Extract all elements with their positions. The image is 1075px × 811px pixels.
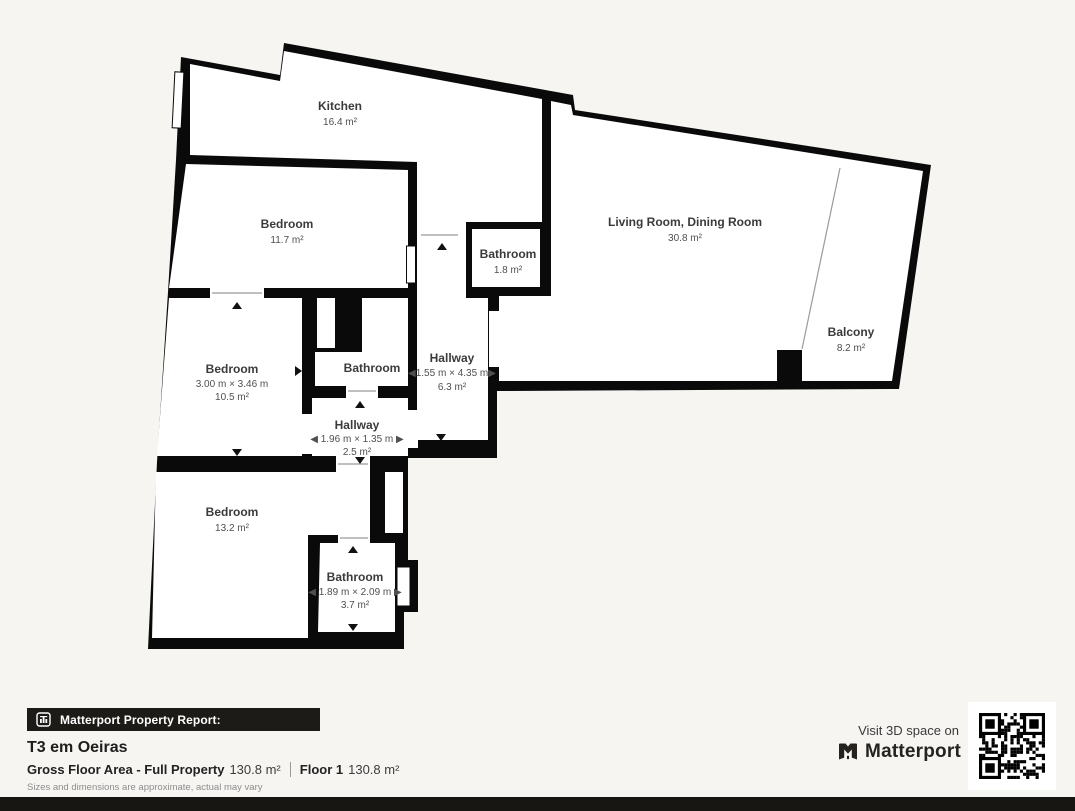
label-hallway-main-dims: ◀1.55 m × 4.35 m▶: [408, 368, 496, 379]
property-title: T3 em Oeiras: [27, 739, 128, 757]
label-bedroom-top-name: Bedroom: [261, 217, 314, 231]
closet: [385, 472, 403, 533]
label-kitchen-name: Kitchen: [318, 99, 362, 113]
label-bathroom-bottom-area: 3.7 m²: [341, 600, 370, 611]
floor-plan-rooms: [152, 51, 923, 638]
matterport-logo-icon: [837, 741, 859, 763]
label-bedroom-mid-area: 10.5 m²: [215, 392, 250, 403]
label-bedroom-top-area: 11.7 m²: [270, 235, 304, 246]
floor-area-stats: Gross Floor Area - Full Property 130.8 m…: [27, 762, 399, 777]
label-bathroom-top-name: Bathroom: [480, 247, 537, 261]
matterport-floor-plan-report: { "colors": { "background": "#f6f5f2", "…: [0, 0, 1075, 811]
bottom-bar: [0, 797, 1075, 811]
report-header-bar: Matterport Property Report:: [27, 708, 320, 731]
label-living-area: 30.8 m²: [668, 233, 703, 244]
label-bathroom-top-area: 1.8 m²: [494, 265, 523, 276]
room-living-balcony: [499, 101, 923, 381]
visit-3d-text: Visit 3D space on: [837, 723, 959, 738]
label-balcony-name: Balcony: [828, 325, 875, 339]
label-hallway-main-area: 6.3 m²: [438, 382, 467, 393]
report-building-icon: [36, 712, 51, 727]
floor-plan: Kitchen 16.4 m² Living Room, Dining Room…: [0, 0, 1075, 811]
visit-3d-block: Visit 3D space on Matterport: [837, 723, 961, 763]
label-bedroom-bottom-area: 13.2 m²: [215, 523, 250, 534]
label-hallway-small-name: Hallway: [335, 418, 380, 432]
label-bedroom-mid-dims: 3.00 m × 3.46 m: [196, 379, 269, 390]
room-bedroom-mid: [157, 298, 302, 456]
qr-code: [968, 702, 1056, 790]
label-bedroom-bottom-name: Bedroom: [206, 505, 259, 519]
label-hallway-main-name: Hallway: [430, 351, 475, 365]
gfa-value: 130.8 m²: [229, 762, 280, 777]
label-hallway-small-dims: ◀ 1.96 m × 1.35 m ▶: [310, 434, 404, 445]
label-bathroom-bottom-dims: ◀ 1.89 m × 2.09 m ▶: [308, 587, 402, 598]
report-bar-label: Matterport Property Report:: [60, 713, 221, 727]
label-kitchen-area: 16.4 m²: [323, 117, 358, 128]
window-bedroom-top: [407, 246, 416, 283]
disclaimer-text: Sizes and dimensions are approximate, ac…: [27, 782, 263, 793]
label-hallway-small-area: 2.5 m²: [343, 447, 372, 458]
label-living-name: Living Room, Dining Room: [608, 215, 762, 229]
gfa-label: Gross Floor Area - Full Property: [27, 762, 224, 777]
label-bathroom-mid-name: Bathroom: [344, 361, 401, 375]
stats-divider: [290, 762, 291, 777]
bathroom-mid-niche: [317, 298, 335, 348]
matterport-brand-row: Matterport: [837, 741, 961, 763]
matterport-brand-name: Matterport: [865, 741, 961, 763]
floor-label: Floor 1: [300, 762, 343, 777]
label-bedroom-mid-name: Bedroom: [206, 362, 259, 376]
label-bathroom-bottom-name: Bathroom: [327, 570, 384, 584]
label-balcony-area: 8.2 m²: [837, 343, 866, 354]
floor-value: 130.8 m²: [348, 762, 399, 777]
